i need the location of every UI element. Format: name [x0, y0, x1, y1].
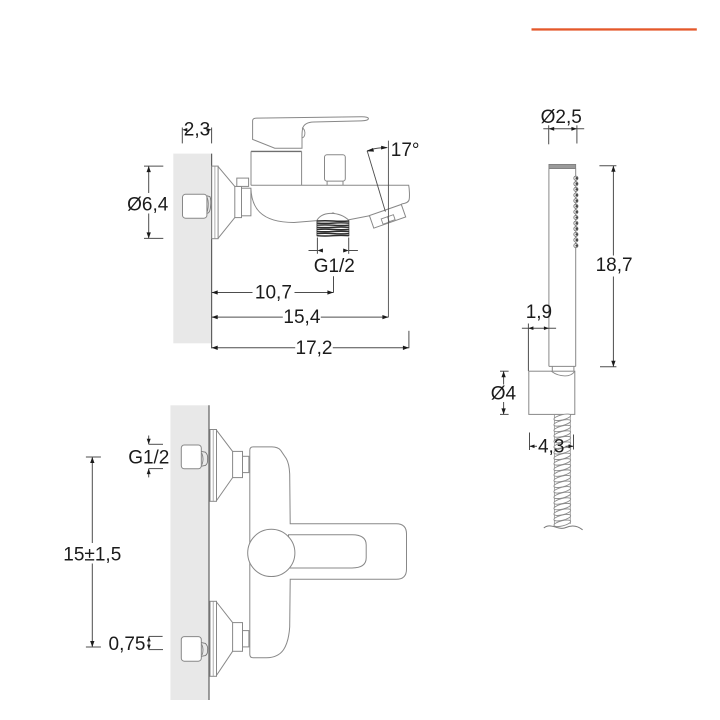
svg-text:Ø6,4: Ø6,4	[127, 195, 169, 216]
svg-text:17,2: 17,2	[296, 338, 333, 359]
svg-text:17°: 17°	[391, 140, 420, 161]
svg-text:2,3: 2,3	[184, 119, 210, 140]
svg-text:G1/2: G1/2	[128, 447, 169, 468]
svg-text:15,4: 15,4	[283, 307, 320, 328]
svg-text:18,7: 18,7	[596, 255, 633, 276]
svg-text:G1/2: G1/2	[314, 256, 355, 277]
svg-text:4,3: 4,3	[538, 436, 564, 457]
svg-text:15±1,5: 15±1,5	[63, 545, 121, 566]
svg-text:1,9: 1,9	[526, 302, 552, 323]
svg-text:0,75: 0,75	[109, 634, 146, 655]
svg-text:Ø4: Ø4	[491, 383, 517, 404]
svg-text:10,7: 10,7	[255, 283, 292, 304]
svg-text:Ø2,5: Ø2,5	[541, 107, 582, 128]
